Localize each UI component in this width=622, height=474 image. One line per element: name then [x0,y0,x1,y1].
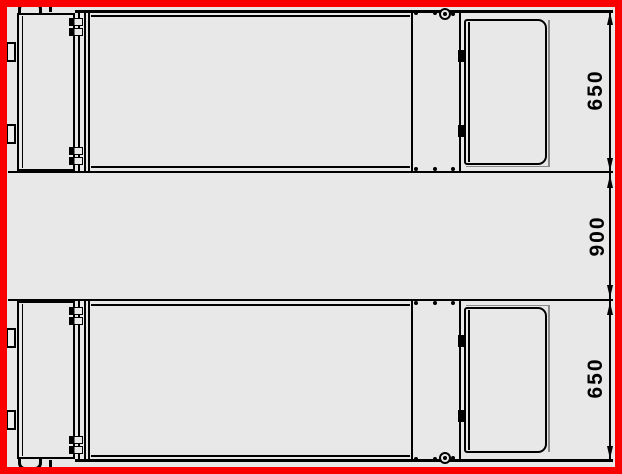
body-seam-bottom [91,305,410,307]
panel-seam [468,310,470,450]
hinge-top [6,410,16,430]
body-seam-bottom [91,166,410,168]
dimension-label-bottom-unit: 650 [584,350,608,406]
door-panel [17,301,75,459]
screw-dot [414,11,418,15]
dimension-arrow-down [607,158,613,171]
panel-clip [458,410,466,422]
hinge-clip [69,317,83,325]
hinge-clip [69,147,83,155]
screw-dot [451,167,455,171]
dimension-label-gap: 900 [586,208,610,264]
dimension-label-top-unit: 650 [584,62,608,118]
panel-shadow-bottom [466,166,550,168]
screw-dot [433,301,437,305]
door-panel [17,13,75,171]
section-divider-line [459,300,461,461]
main-body [88,299,413,462]
hinge-top [6,42,16,62]
dimension-arrow-up [607,175,613,188]
dimension-arrow-up [607,302,613,315]
panel-shadow-right [548,306,550,452]
main-body [88,10,413,173]
technical-drawing-canvas: 650 900 650 [0,0,622,474]
panel-shadow-right [548,20,550,166]
screw-dot [414,167,418,171]
panel-clip [458,125,466,137]
screw-dot [414,301,418,305]
hinge-clip [69,18,83,26]
screw-dot [451,12,455,16]
dimension-arrow-up [607,12,613,25]
panel-clip [458,50,466,62]
section-divider-line [459,11,461,172]
divider-line [84,301,86,460]
divider-line [84,12,86,171]
side-panel [464,307,547,453]
screw-center [443,456,447,460]
body-seam-top [91,456,410,458]
screw-head [439,452,451,464]
unit-plan-view-2 [8,299,613,462]
hinge-bottom [6,328,16,348]
hinge-bottom [6,124,16,144]
screw-dot [433,11,437,15]
door-handle [18,459,42,470]
door-seam [22,304,24,456]
hinge-clip [69,157,83,165]
screw-dot [451,301,455,305]
screw-center [443,12,447,16]
latch-tick [49,3,52,12]
side-panel [464,19,547,165]
screw-dot [451,456,455,460]
screw-dot [433,167,437,171]
hinge-clip [69,446,83,454]
panel-seam [468,22,470,162]
dimension-arrow-down [607,285,613,298]
hinge-clip [69,307,83,315]
screw-head [439,8,451,20]
unit-plan-view-1 [8,10,613,173]
dimension-arrow-down [607,446,613,459]
screw-dot [414,457,418,461]
hinge-clip [69,436,83,444]
door-handle [18,2,42,13]
panel-clip [458,335,466,347]
latch-tick [49,460,52,469]
door-seam [22,16,24,168]
hinge-clip [69,28,83,36]
screw-dot [433,457,437,461]
body-seam-top [91,15,410,17]
